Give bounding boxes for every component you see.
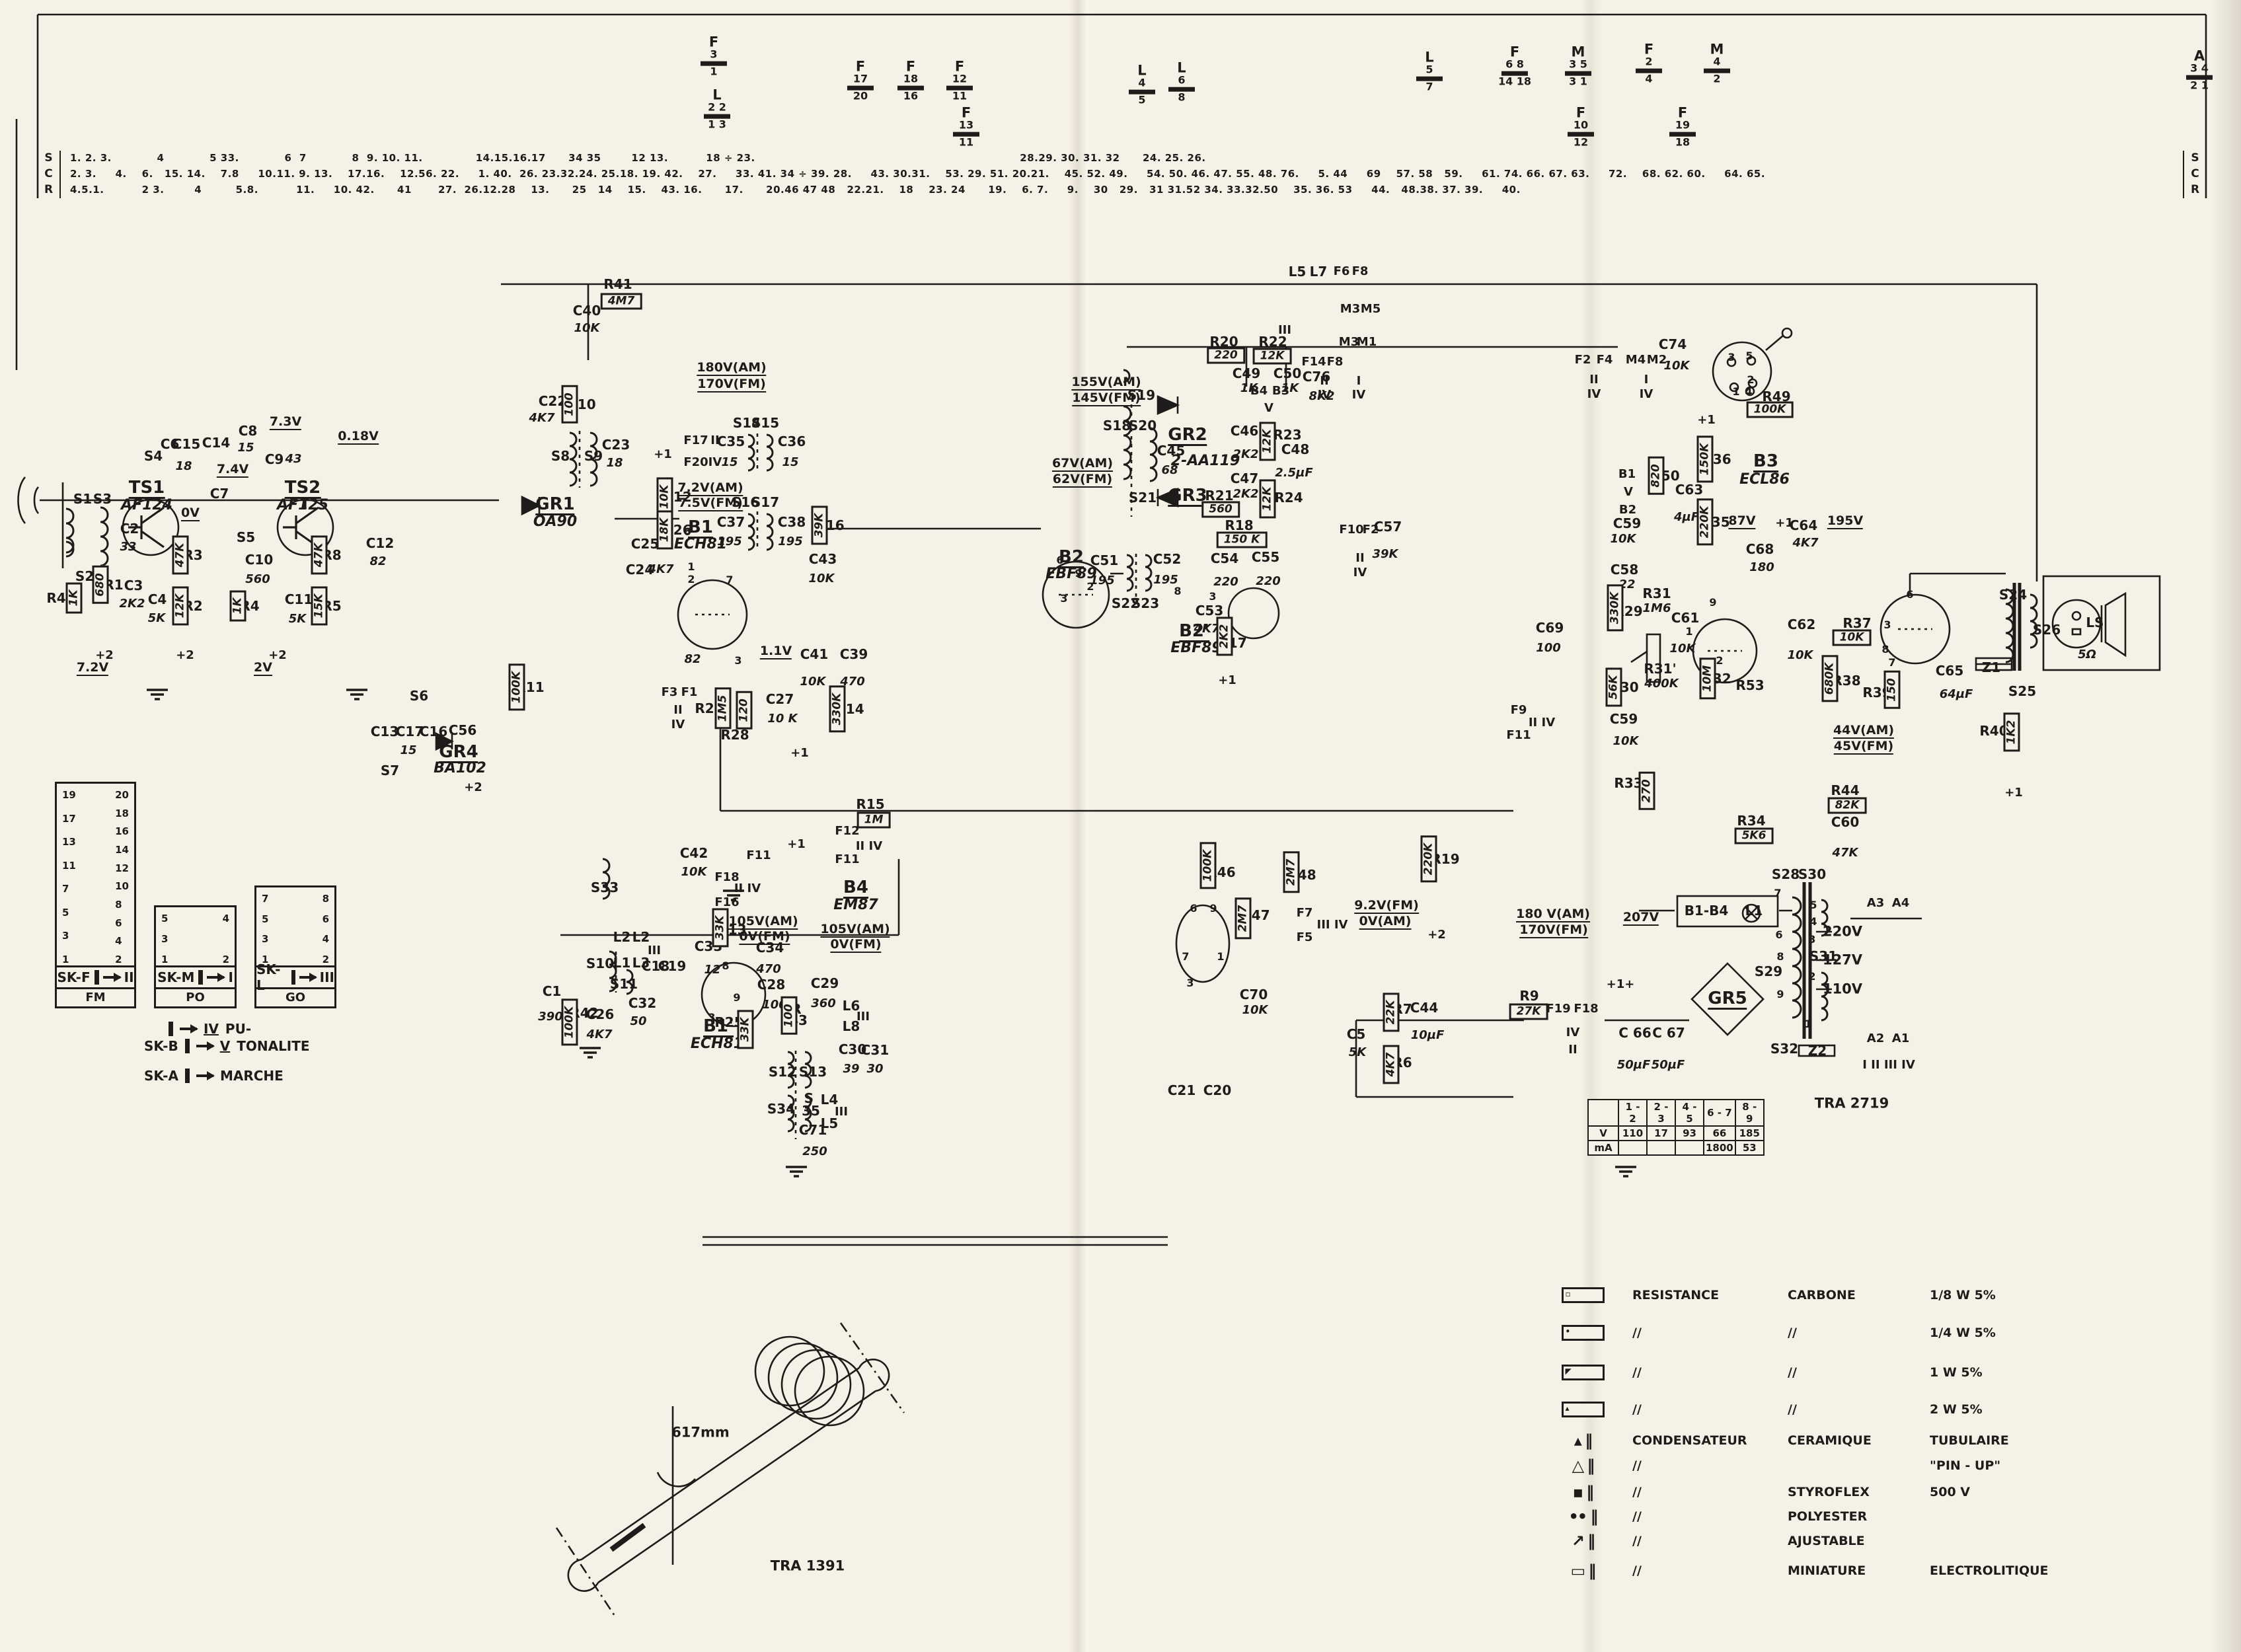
label-c43: C43: [809, 552, 837, 566]
legend-row: ▴////2 W 5%: [1533, 1402, 2088, 1417]
label-12: 12: [704, 964, 720, 976]
label-5: 5: [1809, 900, 1817, 911]
label-iv: IV: [671, 719, 685, 731]
label-4k7: 4K7: [587, 1029, 613, 1041]
switch-pin-b: 12: [1568, 137, 1594, 149]
pin-number: 8: [115, 899, 129, 911]
pin-number: 2: [115, 954, 129, 965]
label-c40: C40: [573, 304, 601, 317]
label-c11: C11: [285, 593, 313, 606]
voltage-table-header: 1 - 2: [1618, 1100, 1647, 1126]
label-f14: F14: [1301, 356, 1326, 368]
label-4k7: 4K7: [1383, 1045, 1400, 1084]
label-b4: B4: [843, 879, 868, 899]
label-3: 3: [1808, 934, 1815, 945]
wafer-switch-symbol-F: F31: [701, 35, 727, 78]
label-f20: F20: [683, 457, 708, 469]
label-ii-iv: II IV: [734, 883, 761, 895]
switch-pin-a: 6 8: [1498, 59, 1531, 71]
label-f6: F6: [1334, 266, 1350, 278]
switch-pin-a: 4: [1129, 78, 1155, 89]
label-180: 180: [1749, 562, 1774, 574]
label-15: 15: [721, 457, 738, 469]
legend-row: ▭ ‖//MINIATUREELECTROLITIQUE: [1533, 1561, 2088, 1580]
label-47k: 47K: [311, 536, 328, 575]
legend-text-c2: AJUSTABLE: [1788, 1534, 1930, 1548]
strip-key-left: S: [38, 151, 61, 167]
label-0v-am-: 0V(AM): [1359, 915, 1412, 930]
label-c-67: C 67: [1652, 1026, 1685, 1039]
label-4: 4: [1745, 387, 1752, 397]
resistor-1-4w-icon: •: [1533, 1325, 1632, 1341]
voltage-table-cell: [1618, 1141, 1647, 1155]
label-f12: F12: [835, 825, 859, 837]
label-a4: A4: [1892, 897, 1909, 909]
label-10k: 10K: [1613, 735, 1639, 747]
label-10k: 10K: [1611, 533, 1636, 545]
strip-key-right: C: [2183, 167, 2206, 182]
legend-text-c2: //: [1788, 1326, 1930, 1340]
label-c44: C44: [1410, 1001, 1439, 1014]
label-f5: F5: [1297, 932, 1313, 944]
label-ii: II: [1355, 552, 1364, 564]
label-127v: 127V: [1823, 954, 1862, 967]
label-a3: A3: [1867, 897, 1884, 909]
label-c56: C56: [449, 724, 477, 737]
voltage-table: 1 - 22 - 34 - 56 - 78 - 9V110179366185mA…: [1587, 1099, 1765, 1156]
legend-text-c1: //: [1632, 1563, 1788, 1578]
label-s19: S19: [1127, 389, 1155, 402]
label-7-4v: 7.4V: [217, 463, 248, 478]
switch-bar-icon: [185, 1069, 190, 1083]
label-560: 560: [1201, 502, 1240, 518]
legend-row: •• ‖//POLYESTER: [1533, 1507, 2088, 1526]
label-l4: L4: [821, 1093, 839, 1106]
label-39k: 39K: [812, 506, 828, 545]
label-195: 195: [1090, 575, 1115, 587]
label-c62: C62: [1788, 618, 1816, 631]
switch-name: SK-L: [256, 961, 287, 993]
label-330k: 330K: [1607, 585, 1624, 632]
capacitor-pinup-icon: △ ‖: [1533, 1456, 1632, 1475]
label-s6: S6: [410, 689, 428, 702]
label-iv: IV: [1566, 1027, 1580, 1039]
switch-pin-b: 16: [897, 91, 924, 102]
label-105v-am-: 105V(AM): [820, 923, 890, 938]
label-iv: IV: [1318, 389, 1332, 401]
label-s5: S5: [237, 531, 255, 544]
label-s17: S17: [751, 496, 779, 509]
label-220k: 220K: [1697, 499, 1714, 546]
label-c55: C55: [1252, 550, 1280, 564]
legend-row: ◤////1 W 5%: [1533, 1365, 2088, 1380]
wafer-switch-symbol-F: F1918: [1669, 106, 1696, 149]
switch-pin-b: 1 3: [704, 120, 730, 131]
arrow-icon: [207, 976, 224, 979]
label--2: +2: [176, 650, 194, 661]
label-b3: B3: [1272, 385, 1289, 397]
label-10k: 10K: [800, 676, 826, 688]
label-s33: S33: [591, 881, 619, 894]
label-r31-: R31': [1644, 662, 1676, 675]
label-c31: C31: [861, 1043, 890, 1057]
pin-number: 8: [323, 893, 329, 905]
resistor-1-8w-icon: ▫: [1533, 1287, 1632, 1303]
label-7-2v: 7.2V: [77, 661, 108, 676]
label-15k: 15K: [311, 587, 328, 626]
switch-pin-b: 2: [1704, 74, 1730, 85]
label-m5: M5: [1361, 303, 1381, 315]
label-2k2: 2K2: [120, 598, 145, 610]
legend-row: △ ‖//"PIN - UP": [1533, 1456, 2088, 1475]
voltage-table-cell: 53: [1735, 1141, 1764, 1155]
strip-key-left: C: [38, 167, 61, 182]
legend-row: ↗ ‖//AJUSTABLE: [1533, 1532, 2088, 1550]
label-2m7: 2M7: [1235, 898, 1252, 940]
label-tra-1391: TRA 1391: [771, 1559, 845, 1573]
switch-block-pins: 1917131175312018161412108642: [57, 786, 134, 968]
label-gr1: GR1: [535, 496, 574, 515]
legend-text-c3: 1/4 W 5%: [1930, 1326, 2088, 1340]
switch-function-row-sk-a: SK-AMARCHE: [144, 1068, 284, 1084]
label-m3: M3: [1340, 303, 1360, 315]
label-ii: II: [1320, 375, 1328, 387]
label--1-: +1+: [1607, 979, 1635, 991]
label-2-5-f: 2.5µF: [1275, 467, 1312, 479]
label-i: I: [1357, 375, 1361, 387]
label-400k: 400K: [1644, 678, 1679, 690]
label--1: +1: [1218, 675, 1236, 687]
label-56k: 56K: [1606, 668, 1622, 707]
switch-block-name: SK-LIII: [256, 965, 334, 989]
strip-key-right: S: [2183, 151, 2206, 167]
label-43: 43: [285, 453, 301, 465]
label-tra-2719: TRA 2719: [1815, 1097, 1889, 1111]
label-r18: R18: [1225, 519, 1253, 532]
label--1: +1: [654, 449, 672, 461]
wafer-switch-symbol-F: F6 814 18: [1498, 45, 1531, 88]
switch-pin-a: 2 2: [704, 102, 730, 114]
label-3: 3: [1883, 620, 1891, 630]
label--2: +2: [95, 650, 114, 661]
switch-bar-icon: [169, 1022, 173, 1036]
switch-name: SK-B: [144, 1038, 178, 1054]
label-120: 120: [736, 691, 753, 730]
switch-pin-b: 4: [1636, 74, 1662, 85]
legend-text-c1: CONDENSATEUR: [1632, 1433, 1788, 1448]
label--1: +1: [790, 747, 809, 759]
label-39k: 39K: [1373, 548, 1398, 560]
wafer-switch-symbol-L: L57: [1416, 50, 1443, 93]
switch-pin-a: 4: [1704, 57, 1730, 68]
switch-pin-b: 2 1: [2186, 81, 2213, 92]
label-9: 9: [733, 993, 740, 1003]
strip-key-left: R: [38, 182, 61, 198]
arrow-icon: [103, 976, 120, 979]
label-c12: C12: [366, 537, 395, 550]
label-ba102: BA102: [434, 761, 486, 776]
label-c42: C42: [680, 846, 708, 860]
switch-pin-a: 19: [1669, 120, 1696, 131]
label-2: 2: [1716, 656, 1723, 666]
label-r23: R23: [1273, 428, 1301, 441]
voltage-table-cell: 66: [1704, 1126, 1735, 1141]
voltage-table-cell: 17: [1647, 1126, 1675, 1141]
capacitor-polyester-icon: •• ‖: [1533, 1507, 1632, 1526]
voltage-table-cell: 110: [1618, 1126, 1647, 1141]
label-c59: C59: [1613, 517, 1642, 530]
label-iv: IV: [1587, 389, 1601, 400]
label-5k: 5K: [148, 613, 165, 624]
label-b1-b4: B1-B4: [1685, 904, 1729, 917]
label-c52: C52: [1153, 552, 1182, 566]
label-b3: B3: [1753, 453, 1778, 472]
label-180v-am-: 180V(AM): [697, 361, 766, 376]
label-l7: L7: [1310, 265, 1328, 278]
legend-row: ▴ ‖CONDENSATEURCERAMIQUETUBULAIRE: [1533, 1431, 2088, 1450]
label-f19: F19: [1546, 1003, 1570, 1015]
label-c46: C46: [1231, 424, 1259, 437]
label-220: 220: [1213, 576, 1238, 588]
label-c14: C14: [202, 436, 231, 449]
label-f16: F16: [714, 897, 739, 909]
label-12k: 12K: [172, 587, 189, 626]
label-1: 1: [1217, 952, 1224, 962]
label-10-f: 10µF: [1411, 1030, 1445, 1041]
voltage-table-cell: 93: [1675, 1126, 1704, 1141]
label-m1: M1: [1357, 336, 1377, 348]
label-15: 15: [782, 457, 798, 469]
label-170v-fm-: 170V(FM): [1519, 924, 1588, 938]
pin-number: 5: [262, 913, 268, 925]
switch-pin-a: 3 5: [1565, 59, 1591, 71]
label-c34: C34: [756, 941, 784, 954]
label-ii-iv: II IV: [1529, 717, 1555, 729]
switch-pin-a: 10: [1568, 120, 1594, 131]
label-33: 33: [120, 541, 136, 553]
label-s28: S28: [1772, 868, 1800, 881]
label-a1: A1: [1892, 1033, 1909, 1045]
pin-number: 7: [62, 883, 76, 895]
switch-pin-b: 18: [1669, 137, 1696, 149]
label-c68: C68: [1746, 543, 1774, 556]
legend-text-c1: //: [1632, 1485, 1788, 1499]
label-9: 9: [1209, 903, 1217, 914]
label-10k: 10K: [1242, 1004, 1268, 1016]
label-35: 35: [802, 1104, 820, 1117]
label-v: V: [1624, 486, 1633, 498]
switch-block-pins: 53142: [156, 910, 235, 968]
label-82k: 82K: [1828, 798, 1867, 814]
pin-number: 11: [62, 860, 76, 872]
legend-text-c2: STYROFLEX: [1788, 1485, 1930, 1499]
switch-pin-a: 5: [1416, 65, 1443, 76]
schematic-page: S1. 2. 3. 4 5 33. 6 7 8 9. 10. 11. 14.15…: [0, 0, 2241, 1652]
label-2k2: 2K2: [1233, 449, 1259, 461]
label-c71: C71: [799, 1123, 827, 1137]
switch-pin-b: 14 18: [1498, 77, 1531, 88]
label-1k: 1K: [230, 590, 247, 621]
label-c32: C32: [628, 996, 657, 1010]
switch-bar-icon: [95, 970, 99, 985]
label-f3: F3: [662, 687, 678, 698]
label-f7: F7: [1297, 907, 1313, 919]
arrow-icon: [299, 976, 316, 979]
label-47k: 47K: [172, 536, 189, 575]
label-2k2: 2K2: [1217, 617, 1233, 656]
label-2: 2: [1747, 375, 1754, 385]
label-6: 6: [1775, 930, 1782, 940]
label-10k: 10K: [1833, 630, 1872, 646]
label-r28: R28: [720, 728, 749, 741]
label-1: 1: [1685, 626, 1692, 637]
label-390: 390: [538, 1011, 563, 1023]
label-5k6: 5K6: [1735, 828, 1774, 845]
label-7: 7: [726, 575, 733, 585]
label-f8: F8: [1352, 266, 1369, 278]
label-617mm: 617mm: [671, 1426, 730, 1440]
arrow-icon: [196, 1045, 213, 1047]
label-ii-iv: II IV: [856, 841, 882, 852]
label-170v-fm-: 170V(FM): [697, 378, 766, 393]
label-39: 39: [843, 1063, 859, 1075]
label-3: 3: [734, 656, 741, 666]
label-s32: S32: [1770, 1042, 1798, 1055]
switch-name: SK-M: [157, 969, 194, 985]
label-s11: S11: [610, 977, 638, 991]
label-33k: 33K: [738, 1010, 754, 1049]
label-c70: C70: [1240, 988, 1268, 1001]
label-5: 5: [1745, 351, 1753, 361]
label-b4: B4: [1250, 385, 1268, 397]
label-z1: Z1: [1982, 661, 2000, 674]
label-270: 270: [1639, 772, 1655, 810]
band-label: PO: [156, 989, 235, 1006]
legend-text-c1: //: [1632, 1458, 1788, 1473]
label-s30: S30: [1798, 868, 1826, 881]
label-10k: 10K: [1670, 643, 1696, 655]
label-2: 2: [687, 574, 695, 585]
resistor-1w-icon: ◤: [1533, 1365, 1632, 1380]
label-ech81: ECH81: [691, 1037, 743, 1051]
label-64-f: 64µF: [1940, 689, 1973, 700]
label-1: 1: [1732, 387, 1739, 397]
label-b1: B1: [1618, 469, 1636, 480]
label-5-: 5Ω: [2078, 649, 2096, 661]
label-s8: S8: [551, 449, 570, 463]
legend-text-c3: 500 V: [1930, 1485, 2088, 1499]
label-1m: 1M: [857, 812, 891, 829]
label-gr5: GR5: [1708, 990, 1747, 1010]
label-87v: 87V: [1728, 515, 1755, 529]
label-27k: 27K: [1509, 1004, 1548, 1020]
label-iii-iv: III IV: [1317, 919, 1348, 931]
label-1k: 1K: [66, 582, 83, 613]
label-ii: II: [1589, 374, 1598, 386]
label-820: 820: [1648, 457, 1665, 495]
label-m3: M3: [1339, 336, 1359, 348]
label-l2: L2: [613, 930, 631, 944]
label-44v-am-: 44V(AM): [1833, 724, 1894, 739]
label-oa90: OA90: [533, 515, 577, 529]
label-470: 470: [756, 963, 781, 975]
resistor-2w-icon: ▴: [1533, 1402, 1632, 1417]
label-iv: IV: [1352, 389, 1366, 401]
pin-number: 3: [262, 933, 268, 945]
label-c10: C10: [245, 553, 274, 566]
label--1: +1: [1697, 414, 1716, 426]
label-62v-fm-: 62V(FM): [1053, 473, 1112, 488]
label--1: +1: [787, 839, 806, 850]
switch-function-row-iv: IVPU-: [169, 1021, 251, 1037]
switch-pin-a: 12: [946, 74, 973, 85]
legend-text-c3: "PIN - UP": [1930, 1458, 2088, 1473]
label-180-v-am-: 180 V(AM): [1516, 908, 1590, 922]
pin-number: 1: [62, 954, 76, 965]
label-1m5: 1M5: [715, 688, 732, 730]
pin-number: 3: [161, 933, 168, 945]
label-l1: L1: [613, 956, 631, 969]
label-z2: Z2: [1808, 1044, 1827, 1057]
label-s2: S2: [75, 570, 94, 583]
label-47k: 47K: [1833, 847, 1858, 859]
label-r15: R15: [856, 798, 884, 811]
label-100: 100: [562, 385, 578, 424]
label-1: 1: [1804, 1019, 1811, 1030]
label-4m7: 4M7: [601, 293, 642, 310]
label-s1: S1: [73, 492, 92, 506]
label-s9: S9: [584, 449, 603, 463]
label-c38: C38: [778, 515, 806, 529]
label-4k7: 4K7: [1793, 537, 1819, 549]
label-7: 7: [1774, 888, 1781, 899]
pin-number: 4: [323, 933, 329, 945]
label-f11: F11: [1506, 730, 1531, 741]
label-100k: 100K: [509, 664, 525, 711]
label-i-ii-iii-iv: I II III IV: [1862, 1059, 1915, 1071]
label-l1: L1: [1745, 904, 1763, 917]
label-f4: F4: [1597, 354, 1613, 366]
label-l8: L8: [843, 1020, 860, 1033]
label-195v: 195V: [1827, 515, 1863, 529]
label-r21: R21: [1205, 489, 1233, 502]
label-8: 8: [1776, 952, 1784, 962]
label-iv: IV: [708, 457, 722, 469]
label-12k: 12K: [1260, 422, 1276, 461]
voltage-table-cell: [1675, 1141, 1704, 1155]
pin-number: 1: [161, 954, 168, 965]
voltage-table-header: 2 - 3: [1647, 1100, 1675, 1126]
label-c23: C23: [602, 438, 630, 451]
wafer-switch-symbol-L: L2 21 3: [704, 88, 730, 131]
label-r20: R20: [1209, 335, 1238, 348]
label-s29: S29: [1755, 965, 1782, 978]
strip-contacts: 4.5.1. 2 3. 4 5.8. 11. 10. 42. 41 27. 26…: [61, 182, 2183, 198]
capacitor-electrolytic-icon: ▭ ‖: [1533, 1561, 1632, 1580]
label-c54: C54: [1211, 552, 1239, 565]
label-c50: C50: [1273, 367, 1302, 380]
label-10k: 10K: [809, 573, 835, 585]
arrow-icon: [196, 1074, 213, 1077]
label-6: 6: [1056, 555, 1063, 566]
voltage-table-header: 6 - 7: [1704, 1100, 1735, 1126]
switch-block-pins: 75318642: [256, 890, 334, 968]
label-iv: IV: [1640, 389, 1653, 400]
label-2: 2: [1808, 971, 1815, 982]
capacitor-adjustable-icon: ↗ ‖: [1533, 1532, 1632, 1550]
label-1: 1: [687, 562, 695, 572]
label-100k: 100K: [562, 999, 578, 1046]
